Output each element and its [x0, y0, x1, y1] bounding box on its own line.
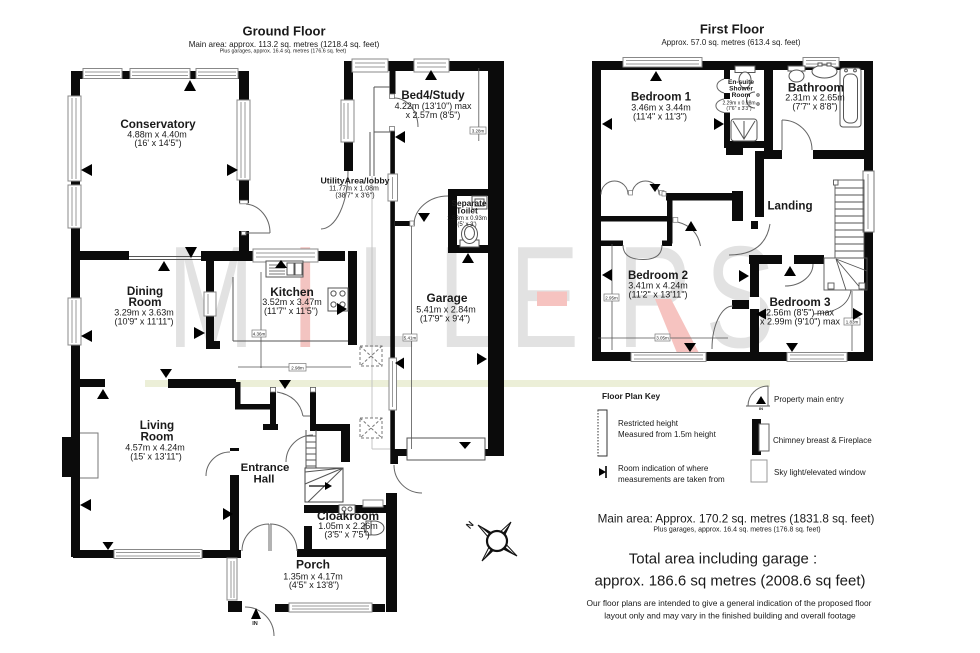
svg-text:Restricted height: Restricted height — [618, 419, 679, 428]
svg-text:First Floor: First Floor — [700, 22, 764, 37]
svg-text:IN: IN — [252, 621, 258, 627]
svg-text:4.36m: 4.36m — [253, 332, 266, 337]
svg-text:5.41m: 5.41m — [404, 336, 417, 341]
svg-text:Toilet: Toilet — [456, 206, 478, 216]
svg-text:layout only and may vary in th: layout only and may vary in the finished… — [604, 611, 856, 621]
svg-text:Room: Room — [732, 92, 751, 99]
svg-text:(11'2" x 13'11"): (11'2" x 13'11") — [628, 290, 687, 300]
svg-text:Main area: Approx. 170.2 sq. m: Main area: Approx. 170.2 sq. metres (183… — [598, 513, 875, 526]
svg-text:Porch: Porch — [296, 558, 330, 572]
svg-text:11.77m x 1.08m: 11.77m x 1.08m — [329, 186, 379, 193]
svg-text:approx. 186.6 sq metres (2008.: approx. 186.6 sq metres (2008.6 sq feet) — [595, 573, 866, 590]
svg-text:1.83m: 1.83m — [846, 320, 859, 325]
svg-text:(3'5" x 7'5"): (3'5" x 7'5") — [324, 530, 369, 540]
svg-text:Sky light/elevated window: Sky light/elevated window — [774, 468, 866, 477]
svg-text:x 2.57m (8'5"): x 2.57m (8'5") — [406, 110, 461, 120]
svg-text:Total area including garage :: Total area including garage : — [629, 551, 817, 568]
svg-text:3.05m: 3.05m — [656, 336, 669, 341]
svg-text:IN: IN — [759, 406, 763, 411]
svg-text:3.28m: 3.28m — [472, 129, 485, 134]
svg-text:(11'4" x 11'3"): (11'4" x 11'3") — [633, 112, 687, 122]
svg-text:Approx. 57.0 sq. metres (613.4: Approx. 57.0 sq. metres (613.4 sq. feet) — [661, 38, 800, 47]
svg-text:Room indication of where: Room indication of where — [618, 464, 709, 473]
svg-text:Plus garages, approx. 16.4 sq.: Plus garages, approx. 16.4 sq. metres (1… — [653, 527, 820, 534]
svg-text:(4'5" x 13'8"): (4'5" x 13'8") — [289, 580, 339, 590]
svg-text:Landing: Landing — [767, 200, 812, 213]
svg-text:Garage: Garage — [427, 291, 468, 305]
svg-text:x 2.99m (9'10") max: x 2.99m (9'10") max — [760, 317, 840, 327]
svg-text:(38'7" x 3'6"): (38'7" x 3'6") — [335, 193, 374, 200]
svg-text:UtilityArea/lobby: UtilityArea/lobby — [320, 176, 389, 186]
svg-text:Our floor plans are intended t: Our floor plans are intended to give a g… — [587, 598, 872, 608]
svg-text:2.98m: 2.98m — [291, 366, 304, 371]
svg-text:(11'7" x 11'5"): (11'7" x 11'5") — [264, 306, 318, 316]
svg-text:Measured from 1.5m height: Measured from 1.5m height — [618, 430, 717, 439]
svg-text:(10'9" x 11'11"): (10'9" x 11'11") — [114, 317, 173, 327]
svg-text:(15' x 13'11"): (15' x 13'11") — [130, 452, 182, 462]
svg-text:(17'9" x 9'4"): (17'9" x 9'4") — [420, 314, 470, 324]
svg-text:(5' x 3'): (5' x 3') — [457, 222, 476, 228]
svg-text:Hall: Hall — [254, 474, 275, 486]
svg-text:(7'7" x 8'8"): (7'7" x 8'8") — [792, 102, 837, 112]
svg-text:Ground Floor: Ground Floor — [242, 24, 325, 39]
svg-text:Floor Plan Key: Floor Plan Key — [602, 391, 660, 401]
svg-text:Plus garages, approx. 16.4 sq.: Plus garages, approx. 16.4 sq. metres (1… — [220, 49, 347, 55]
svg-text:Property main entry: Property main entry — [774, 395, 844, 404]
svg-text:2.95m: 2.95m — [605, 296, 618, 301]
svg-text:(7'6" x 3'3"): (7'6" x 3'3") — [726, 106, 752, 112]
svg-text:measurements are taken from: measurements are taken from — [618, 475, 725, 484]
svg-text:Chimney breast & Fireplace: Chimney breast & Fireplace — [773, 436, 872, 445]
svg-text:L: L — [358, 216, 416, 378]
svg-text:(16' x 14'5"): (16' x 14'5") — [134, 138, 181, 148]
svg-text:Entrance: Entrance — [241, 462, 290, 474]
